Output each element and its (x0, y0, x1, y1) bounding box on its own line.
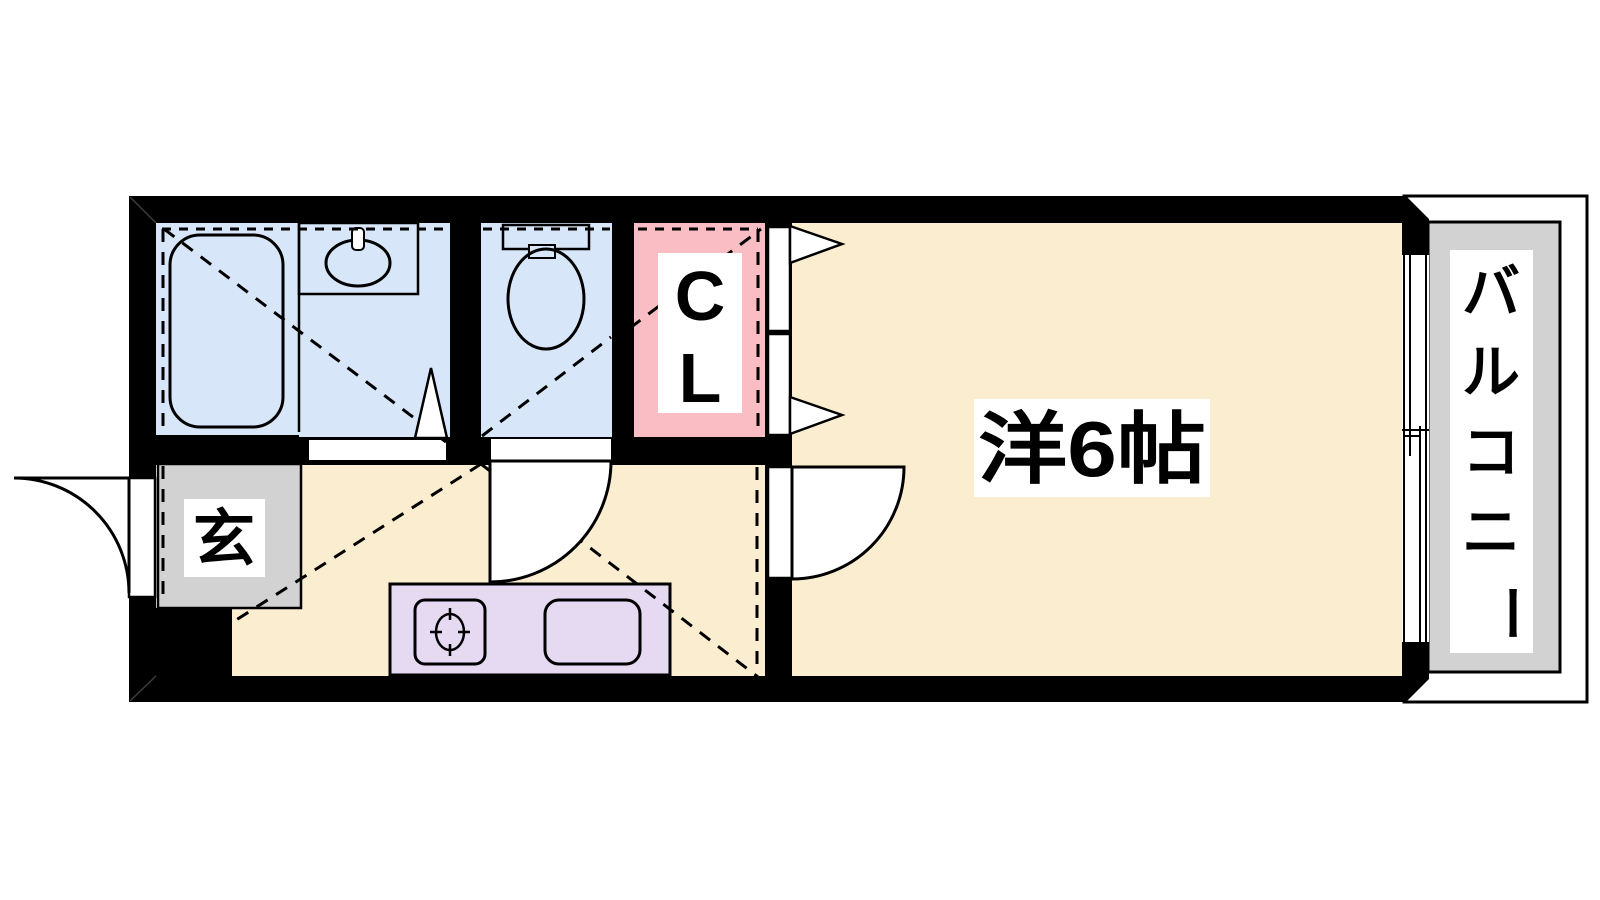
sliding-window-opening (1402, 255, 1429, 642)
washroom-doorway (308, 439, 447, 461)
floor-plan-page: バ ル コ ニ ー (0, 0, 1600, 900)
entrance-label: 玄 (193, 505, 255, 574)
balcony-label-char-2: ル (1462, 340, 1520, 405)
closet-label-char-2: L (679, 339, 722, 417)
kitchen-counter (390, 584, 670, 675)
closet-door-leaf-top (768, 227, 790, 331)
balcony-label-char-1: バ (1462, 260, 1520, 325)
closet-label-char-1: C (675, 257, 726, 335)
main-room-label: 洋6帖 (978, 405, 1206, 493)
balcony-label-char-3: コ (1462, 420, 1520, 485)
entrance-door-swing (14, 478, 129, 593)
washbasin-tap-icon (352, 228, 364, 250)
entrance-doorway (129, 478, 155, 597)
bathroom-floor (156, 223, 299, 435)
toilet-doorway (490, 438, 612, 461)
wall-toilet-closet (612, 223, 634, 437)
wall-top (129, 196, 1402, 223)
wall-left (129, 196, 156, 702)
wall-bottom (129, 676, 1402, 702)
room-doorway (768, 467, 792, 578)
floor-plan-drawing: バ ル コ ニ ー (0, 0, 1600, 900)
balcony-label-char-4: ニ (1462, 500, 1520, 565)
closet-door-leaf-bottom (768, 334, 790, 435)
balcony-label-char-5: ー (1478, 584, 1543, 642)
wall-washroom-toilet (450, 223, 481, 464)
